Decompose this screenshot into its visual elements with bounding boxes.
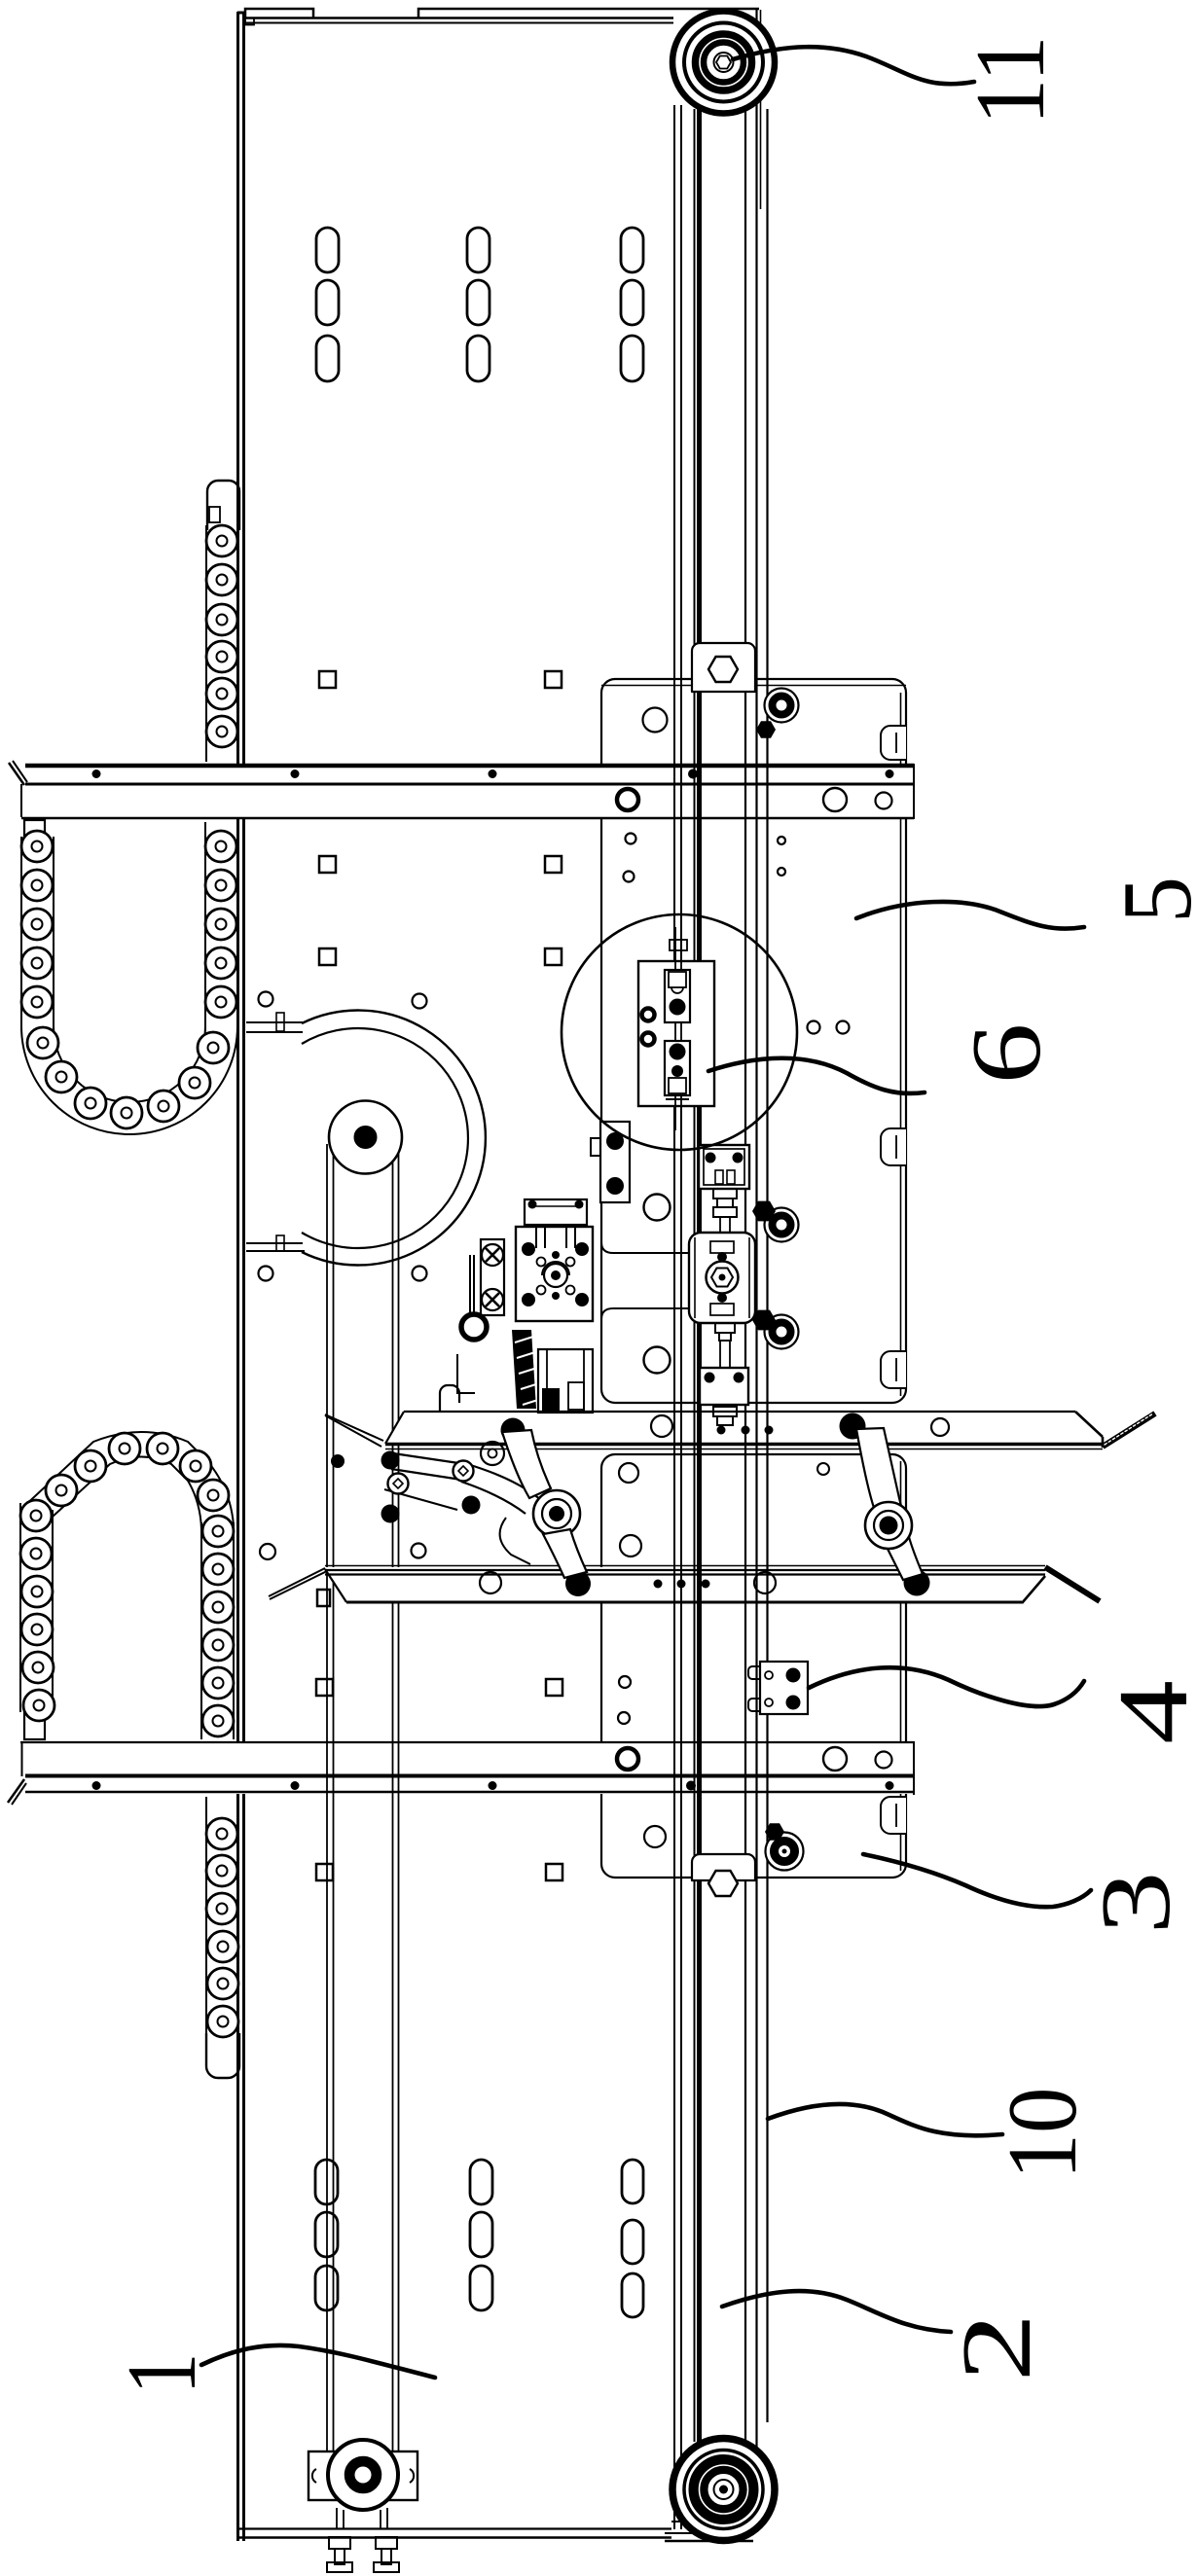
svg-text:10: 10 <box>988 2088 1098 2180</box>
svg-text:4: 4 <box>1099 1680 1197 1744</box>
svg-text:2: 2 <box>942 2313 1052 2382</box>
svg-text:11: 11 <box>956 36 1066 125</box>
svg-text:1: 1 <box>107 2353 217 2395</box>
svg-text:5: 5 <box>1103 877 1197 923</box>
svg-text:6: 6 <box>952 1023 1062 1085</box>
svg-text:3: 3 <box>1081 1872 1191 1935</box>
